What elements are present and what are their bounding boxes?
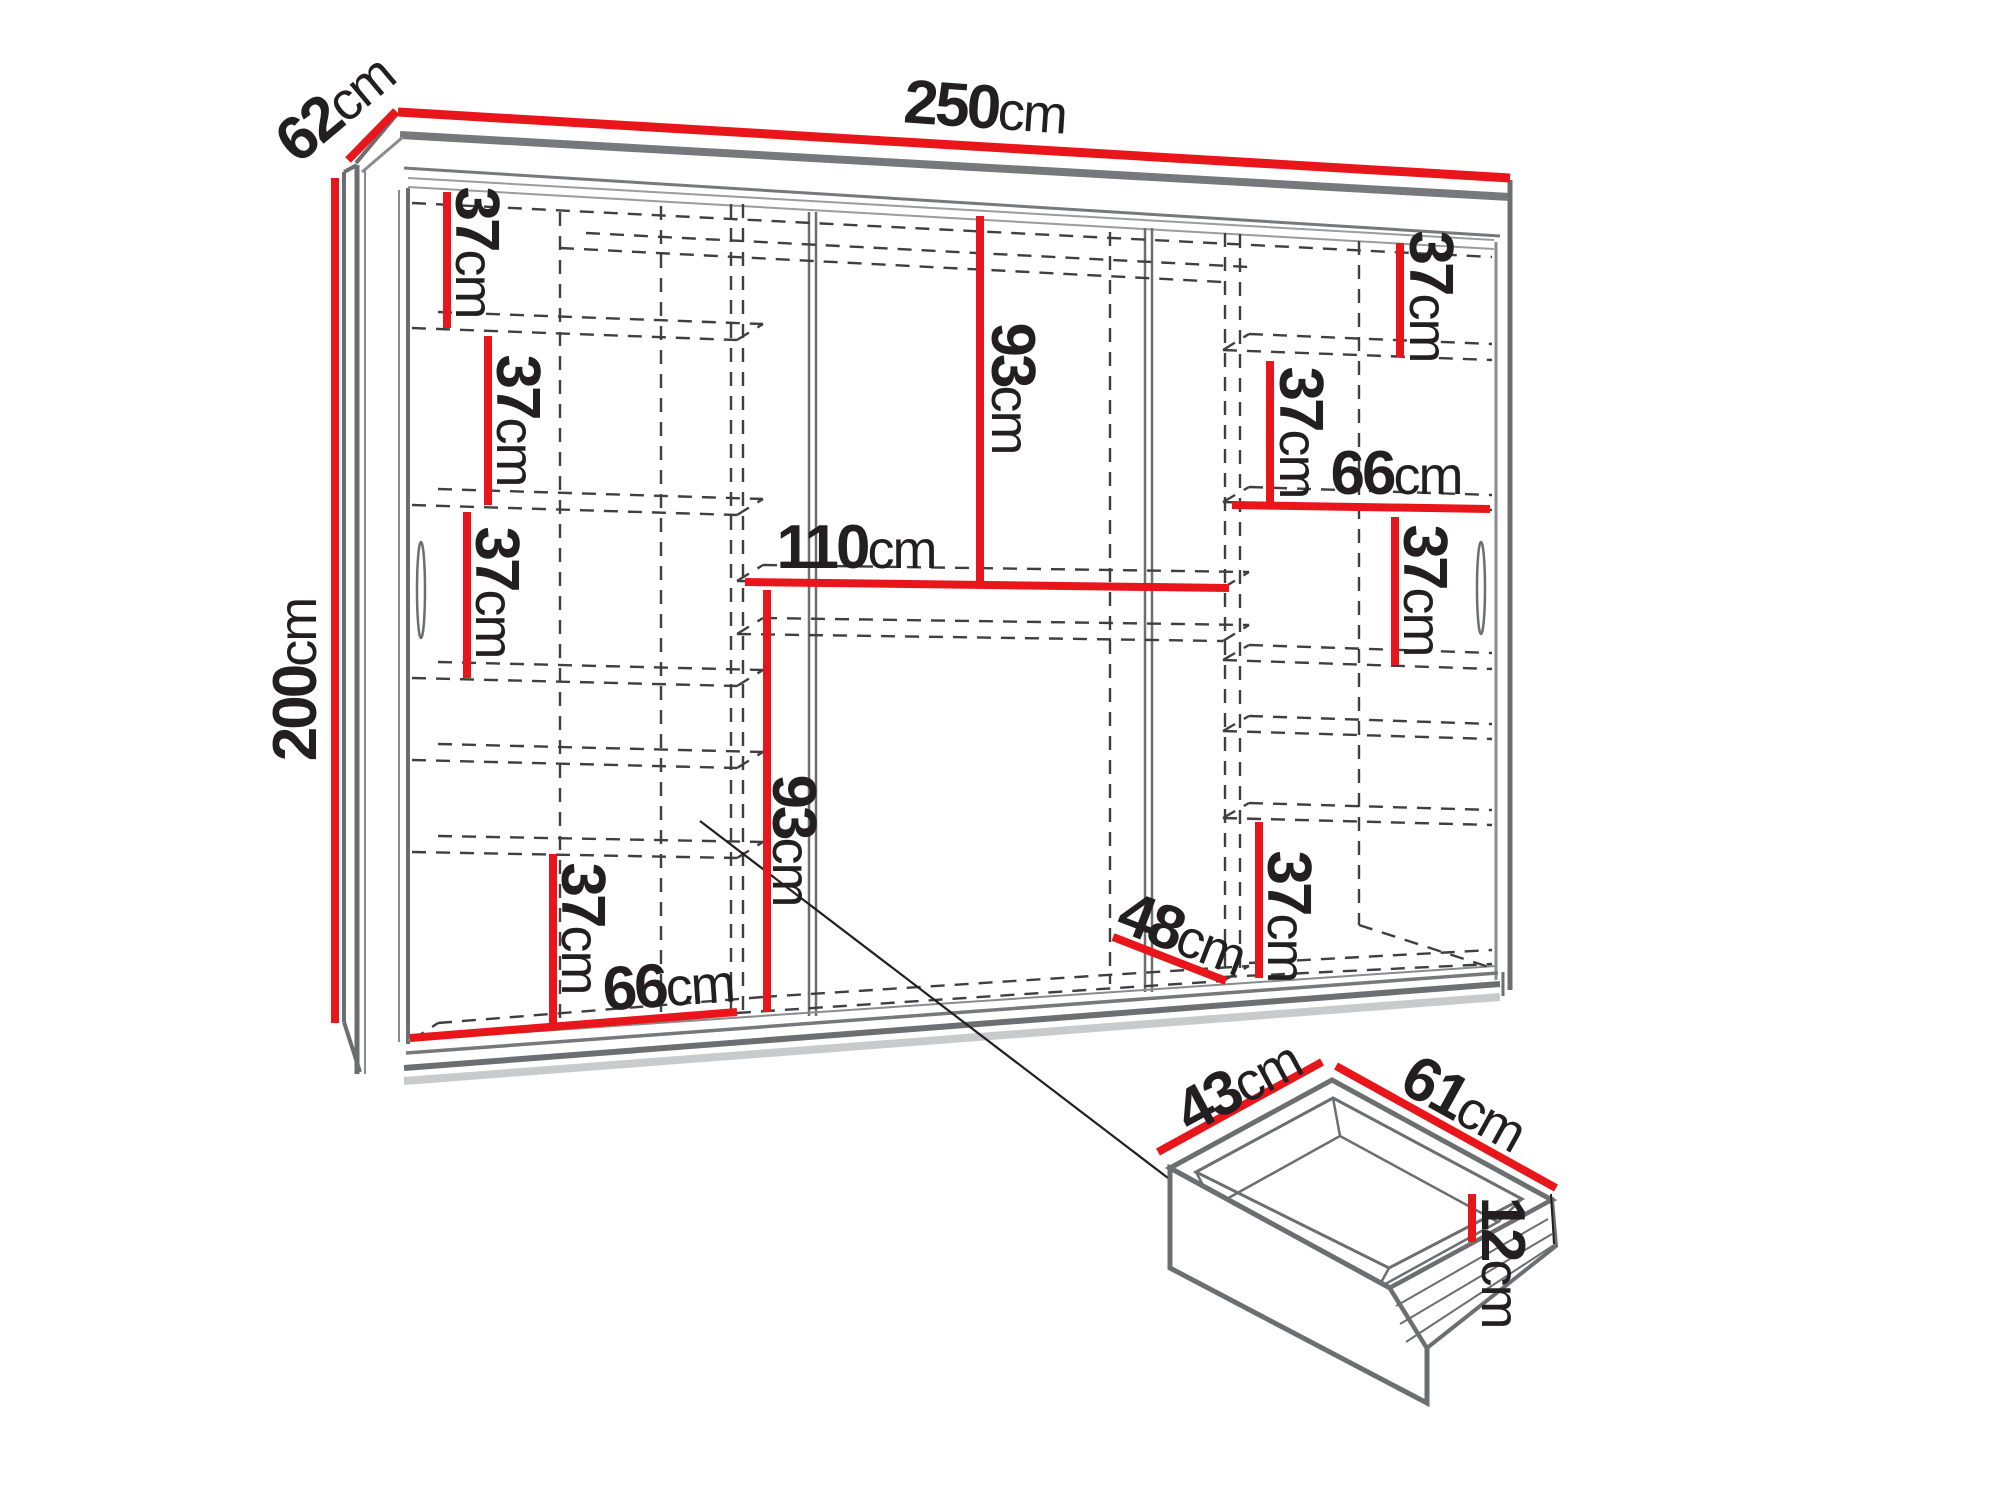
dim-label-middle-width: 110cm xyxy=(776,517,935,579)
dim-value: 37 xyxy=(483,355,552,418)
dim-label-middle-top-height: 93cm xyxy=(981,323,1043,454)
dim-label-right-gap-3: 37cm xyxy=(1393,525,1455,656)
dim-value: 37 xyxy=(1390,525,1459,588)
dim-unit: cm xyxy=(761,837,821,905)
dim-label-right-width: 66cm xyxy=(1331,443,1462,505)
dim-unit: cm xyxy=(664,954,736,1019)
dim-value: 12 xyxy=(1468,1197,1537,1260)
furniture-dimension-diagram: 250cm 62cm 200cm 37cm 37cm 37cm 37cm 66c… xyxy=(0,0,2000,1500)
dim-value: 37 xyxy=(548,863,617,926)
dim-label-left-gap-3: 37cm xyxy=(465,527,527,658)
dim-label-right-gap-bottom: 37cm xyxy=(1257,851,1319,982)
dim-unit: cm xyxy=(268,599,328,667)
dim-value: 93 xyxy=(759,775,828,838)
dim-value: 37 xyxy=(462,527,531,590)
left-door-handle xyxy=(417,542,425,638)
dim-unit: cm xyxy=(868,520,936,580)
dim-label-wardrobe-width: 250cm xyxy=(902,71,1068,144)
dim-unit: cm xyxy=(1393,446,1461,506)
dim-value: 37 xyxy=(442,187,511,250)
dim-unit: cm xyxy=(1256,913,1316,981)
dim-label-right-gap-2: 37cm xyxy=(1269,367,1331,498)
dim-value: 200 xyxy=(261,667,330,761)
right-door-handle xyxy=(1477,542,1485,634)
dim-label-drawer-height: 12cm xyxy=(1471,1197,1533,1328)
dim-label-wardrobe-height: 200cm xyxy=(265,599,327,761)
door-track-2 xyxy=(408,187,1494,249)
dim-value: 66 xyxy=(1331,439,1394,508)
dim-unit: cm xyxy=(444,249,504,317)
dim-unit: cm xyxy=(996,81,1068,146)
dim-label-right-gap-1: 37cm xyxy=(1399,231,1461,362)
dim-label-middle-bottom-height: 93cm xyxy=(762,775,824,906)
dim-value: 37 xyxy=(1254,851,1323,914)
dim-unit: cm xyxy=(485,417,545,485)
dim-unit: cm xyxy=(1392,587,1452,655)
dim-unit: cm xyxy=(1268,429,1328,497)
dim-value: 110 xyxy=(776,513,867,582)
dim-label-left-width: 66cm xyxy=(601,951,736,1022)
dim-value: 37 xyxy=(1396,231,1465,294)
top-fascia-bottom xyxy=(404,168,1500,236)
dim-unit: cm xyxy=(1398,293,1458,361)
dim-unit: cm xyxy=(980,385,1040,453)
dim-value: 250 xyxy=(902,67,1001,142)
dim-value: 66 xyxy=(600,951,668,1024)
dim-unit: cm xyxy=(1470,1259,1530,1327)
dim-label-left-gap-2: 37cm xyxy=(486,355,548,486)
dim-unit: cm xyxy=(464,589,524,657)
dim-label-left-gap-1: 37cm xyxy=(445,187,507,318)
dim-line-middle-width xyxy=(745,582,1229,588)
dim-value: 37 xyxy=(1266,367,1335,430)
dim-value: 93 xyxy=(978,323,1047,386)
